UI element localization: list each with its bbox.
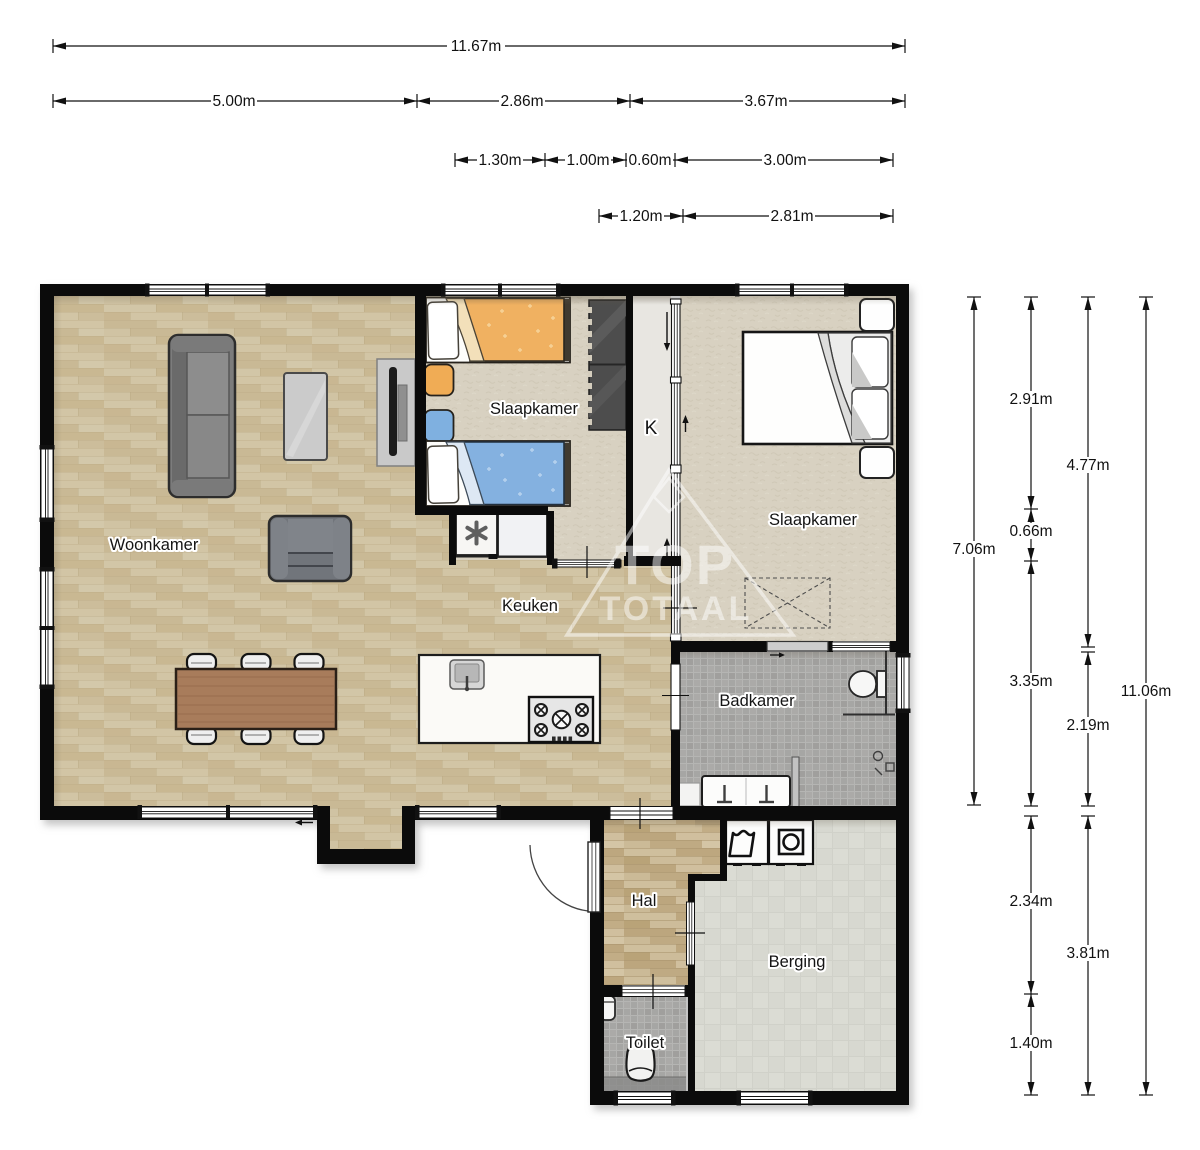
svg-text:1.40m: 1.40m [1009,1035,1052,1052]
svg-text:7.06m: 7.06m [952,541,995,558]
svg-text:5.00m: 5.00m [212,93,255,110]
svg-text:Berging: Berging [769,953,826,971]
svg-text:0.60m: 0.60m [628,152,671,169]
svg-text:Hal: Hal [632,892,657,910]
svg-text:K: K [645,418,658,439]
svg-text:Woonkamer: Woonkamer [110,536,199,554]
svg-text:2.19m: 2.19m [1066,717,1109,734]
svg-text:TOP: TOP [615,533,735,596]
svg-text:2.81m: 2.81m [770,208,813,225]
svg-text:3.81m: 3.81m [1066,945,1109,962]
svg-text:1.30m: 1.30m [478,152,521,169]
svg-text:Keuken: Keuken [502,597,558,615]
svg-text:11.67m: 11.67m [451,38,502,55]
svg-text:1.20m: 1.20m [619,208,662,225]
svg-text:Slaapkamer: Slaapkamer [490,400,579,418]
svg-text:3.67m: 3.67m [744,93,787,110]
svg-text:2.34m: 2.34m [1009,893,1052,910]
svg-text:Toilet: Toilet [626,1034,665,1052]
svg-text:Slaapkamer: Slaapkamer [769,511,858,529]
svg-text:11.06m: 11.06m [1121,683,1172,700]
svg-text:TOTAAL: TOTAAL [600,590,753,628]
svg-text:2.91m: 2.91m [1009,391,1052,408]
svg-text:3.35m: 3.35m [1009,673,1052,690]
svg-text:3.00m: 3.00m [763,152,806,169]
svg-text:Badkamer: Badkamer [719,692,795,710]
svg-text:2.86m: 2.86m [500,93,543,110]
svg-text:1.00m: 1.00m [566,152,609,169]
svg-text:4.77m: 4.77m [1066,457,1109,474]
svg-text:0.66m: 0.66m [1009,523,1052,540]
